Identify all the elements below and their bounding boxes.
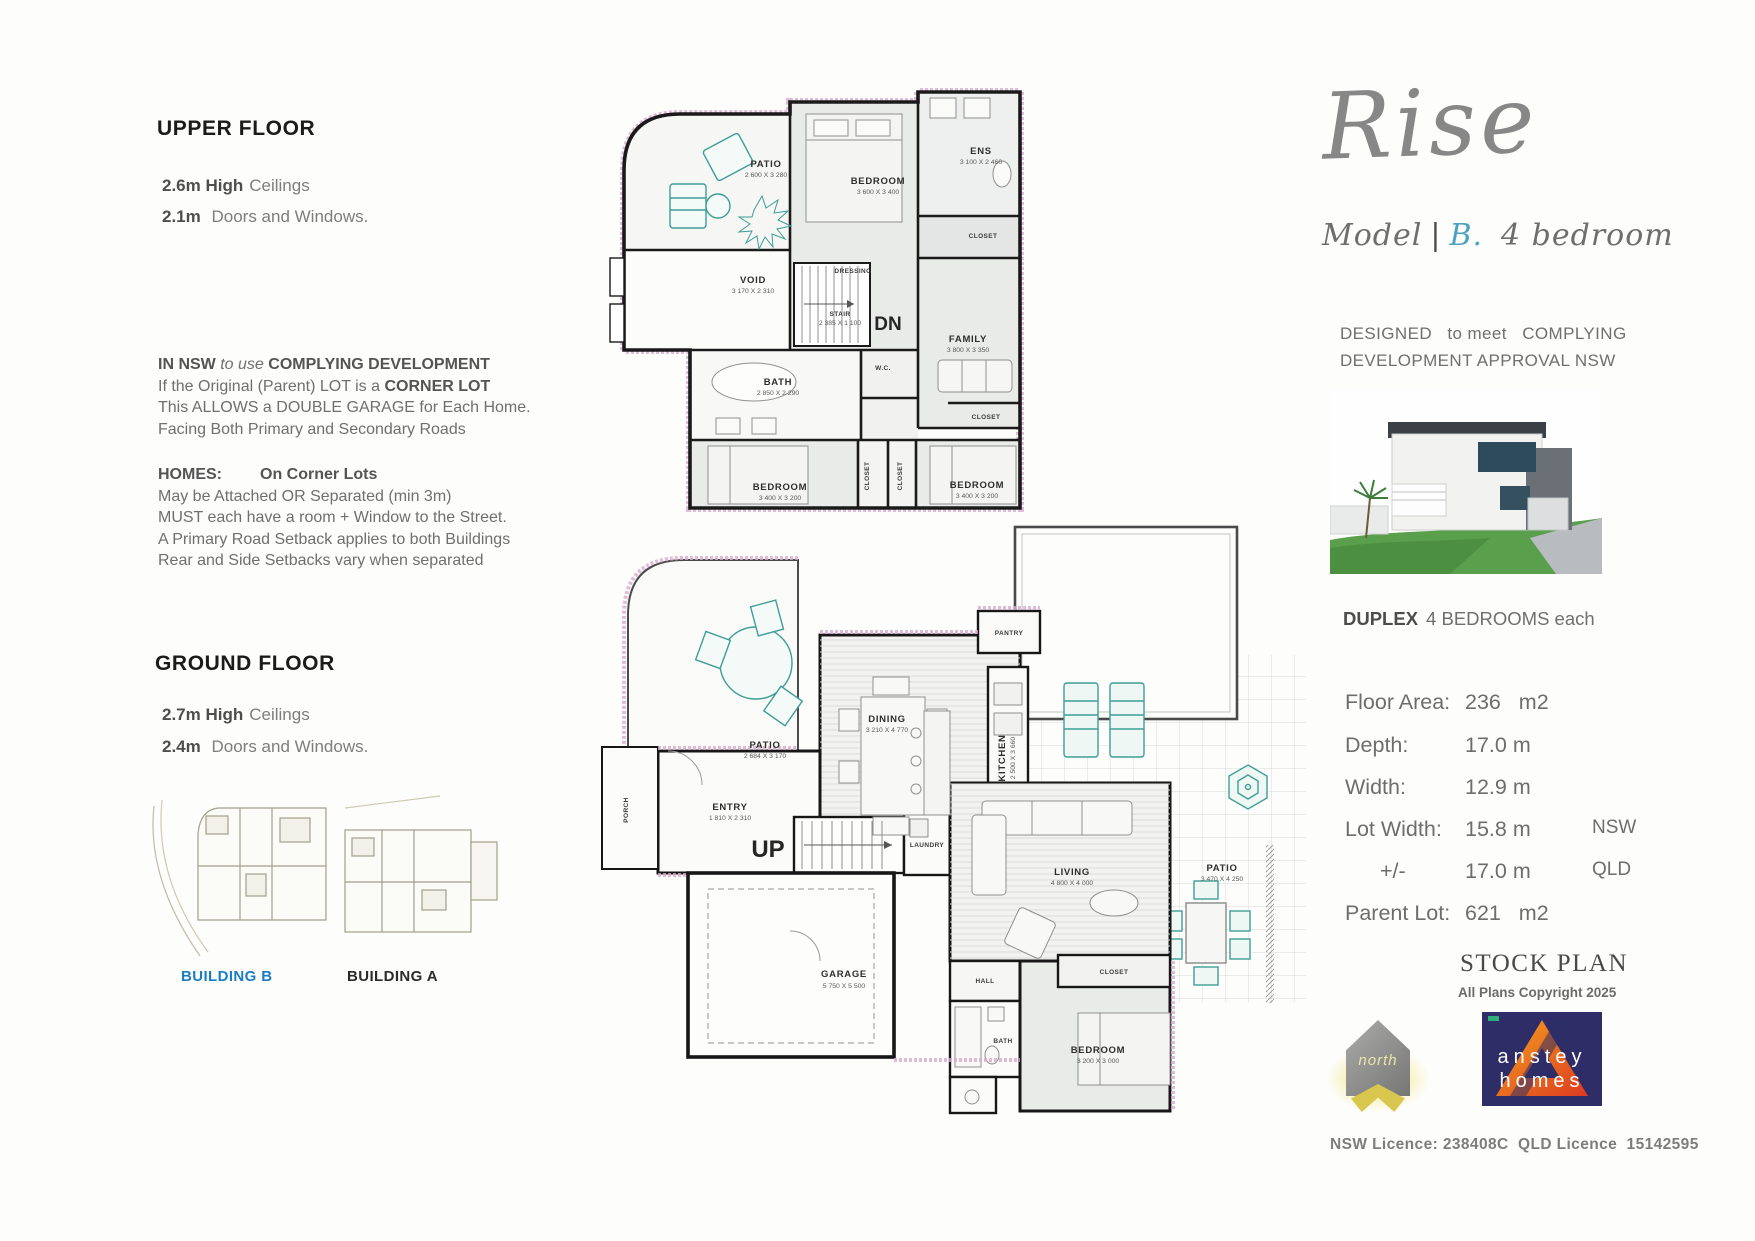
nsw-bold1: IN NSW [158, 356, 216, 373]
upper-ceiling-spec: 2.6m HighCeilings [162, 176, 310, 196]
ground-pantry-label: PANTRY [995, 630, 1024, 637]
ground-closet-label: CLOSET [1100, 969, 1129, 976]
homes-note: HOMES:On Corner Lots May be Attached OR … [158, 464, 618, 572]
anstey-word: anstey [1482, 1046, 1602, 1069]
ground-hall-label: HALL [976, 978, 995, 985]
spec-lot-width-region: NSW [1592, 817, 1636, 839]
building-b-label: BUILDING B [181, 968, 273, 985]
render-fence [1330, 506, 1388, 534]
upper-closet-master-label: CLOSET [969, 233, 998, 240]
spec-lot-width-value: 15.8 m [1465, 817, 1531, 842]
nsw-note-line2: If the Original (Parent) LOT is a CORNER… [158, 376, 598, 398]
spec-width-value: 12.9 m [1465, 775, 1531, 800]
ground-door-height: 2.4m [162, 737, 201, 756]
upper-family-label: FAMILY [949, 334, 987, 345]
upper-master-label: BEDROOM [851, 176, 906, 187]
ground-front-patio [624, 558, 802, 765]
upper-ens-dims: 3 100 X 2 460 [960, 159, 1003, 166]
site-plan-buildings [153, 796, 497, 956]
nsw-italic: to use [216, 356, 268, 373]
homes-bold1: HOMES: [158, 466, 222, 483]
ground-laundry-label: LAUNDRY [910, 842, 945, 849]
spec-plusminus-label: +/- [1380, 859, 1406, 884]
ground-garage-dims: 5 750 X 5 500 [823, 983, 866, 990]
designed-line1: DESIGNED to meet COMPLYING [1340, 320, 1620, 347]
spec-floor-area-value: 236 m2 [1465, 690, 1549, 715]
ground-bedroom-label: BEDROOM [1071, 1045, 1126, 1056]
upper-patio-label: PATIO [750, 159, 781, 170]
designed-line2: DEVELOPMENT APPROVAL NSW [1340, 347, 1620, 374]
nsw-note-line1: IN NSW to use COMPLYING DEVELOPMENT [158, 354, 598, 376]
ground-bedroom-dims: 3 200 X 3 000 [1077, 1058, 1120, 1065]
spec-parent-lot-value: 621 m2 [1465, 901, 1549, 926]
upper-closet-mid-b-label: CLOSET [897, 462, 904, 491]
upper-ceiling-height: 2.6m High [162, 176, 243, 195]
upper-stair-label: STAIR [829, 311, 850, 318]
homes-note-line5: Rear and Side Setbacks vary when separat… [158, 550, 618, 572]
upper-dressing-label: DRESSING [834, 268, 871, 275]
upper-bath-label: BATH [764, 377, 792, 388]
upper-void-label: VOID [740, 275, 766, 286]
nsw-note: IN NSW to use COMPLYING DEVELOPMENT If t… [158, 354, 598, 440]
upper-bedroom-left-dims: 3 400 X 3 200 [759, 495, 802, 502]
homes-note-line4: A Primary Road Setback applies to both B… [158, 529, 618, 551]
building-a-label: BUILDING A [347, 968, 438, 985]
upper-closet-mid-a-label: CLOSET [864, 462, 871, 491]
upper-bedroom-right-label: BEDROOM [950, 480, 1005, 491]
ground-patio-rear-label: PATIO [1206, 863, 1237, 874]
ground-living-label: LIVING [1054, 867, 1090, 878]
upper-stair-dn: DN [874, 314, 901, 335]
ground-kitchen-dims: 2 500 X 3 660 [1010, 737, 1017, 780]
upper-ens-label: ENS [970, 146, 992, 157]
brand-logo-rise: Rise [1320, 66, 1540, 180]
upper-door-rest: Doors and Windows. [207, 207, 369, 226]
nsw-note-line4: Facing Both Primary and Secondary Roads [158, 419, 598, 441]
duplex-bold: DUPLEX [1343, 608, 1418, 629]
spec-depth-value: 17.0 m [1465, 733, 1531, 758]
designed-note: DESIGNED to meet COMPLYING DEVELOPMENT A… [1340, 320, 1620, 374]
spec-plusminus-region: QLD [1592, 859, 1631, 881]
upper-bedroom-left-label: BEDROOM [753, 482, 808, 493]
homes-note-line3: MUST each have a room + Window to the St… [158, 507, 618, 529]
stock-plan-label: STOCK PLAN [1460, 950, 1628, 978]
nsw-note-line3: This ALLOWS a DOUBLE GARAGE for Each Hom… [158, 397, 598, 419]
upper-void-dims: 3 170 X 2 310 [732, 288, 775, 295]
upper-wc-label: W.C. [875, 365, 891, 372]
upper-bath-dims: 2 850 X 2 290 [757, 390, 800, 397]
nsw-line2b: CORNER LOT [384, 378, 490, 395]
ground-patio-rear-dims: 3 470 X 4 250 [1201, 876, 1244, 883]
upper-patio-dims: 2 600 X 3 280 [745, 172, 788, 179]
duplex-line: DUPLEX4 BEDROOMS each [1343, 608, 1595, 630]
upper-closet-hall-label: CLOSET [972, 414, 1001, 421]
ground-door-rest: Doors and Windows. [207, 737, 369, 756]
spec-parent-lot-label: Parent Lot: [1345, 901, 1450, 926]
upper-stair-dims: 2 385 X 1 100 [819, 320, 862, 327]
ground-living-dims: 4 800 X 4 000 [1051, 880, 1094, 887]
anstey-homes-logo: anstey homes [1482, 1012, 1602, 1106]
spec-lot-width-label: Lot Width: [1345, 817, 1442, 842]
ground-ceiling-rest: Ceilings [249, 705, 309, 724]
upper-floor-plan: PATIO 2 600 X 3 280 BEDROOM 3 600 X 3 40… [558, 88, 1033, 513]
ground-patio-front-dims: 2 684 X 3 170 [744, 753, 787, 760]
upper-ceiling-rest: Ceilings [249, 176, 309, 195]
nsw-line2a: If the Original (Parent) LOT is a [158, 378, 384, 395]
model-prefix: Model [1322, 218, 1422, 253]
upper-door-spec: 2.1m Doors and Windows. [162, 207, 368, 227]
spec-floor-area-label: Floor Area: [1345, 690, 1450, 715]
licence-line: NSW Licence: 238408C QLD Licence 1514259… [1330, 1136, 1699, 1154]
ground-entry-dims: 1 810 X 2 310 [709, 815, 752, 822]
ground-dining-label: DINING [868, 714, 905, 725]
ground-porch-label: PORCH [623, 797, 630, 822]
copyright-label: All Plans Copyright 2025 [1458, 985, 1616, 1000]
house-render-image [1330, 388, 1602, 574]
upper-door-height: 2.1m [162, 207, 201, 226]
ground-garage-label: GARAGE [821, 969, 867, 980]
ground-door-spec: 2.4m Doors and Windows. [162, 737, 368, 757]
nsw-bold2: COMPLYING DEVELOPMENT [268, 356, 490, 373]
homes-bold2: On Corner Lots [260, 466, 377, 483]
ground-bath-label: BATH [993, 1038, 1012, 1045]
ground-ceiling-spec: 2.7m HighCeilings [162, 705, 310, 725]
north-compass-logo: north [1320, 1020, 1436, 1116]
anstey-green-mark [1488, 1016, 1499, 1021]
model-variant: B. [1449, 218, 1483, 253]
upper-floor-heading: UPPER FLOOR [157, 117, 315, 141]
site-plan-sketch [140, 778, 530, 964]
model-bar: | [1430, 218, 1441, 253]
duplex-rest: 4 BEDROOMS each [1426, 608, 1595, 629]
ground-floor-heading: GROUND FLOOR [155, 652, 335, 676]
upper-family-dims: 3 800 X 3 350 [947, 347, 990, 354]
spec-width-label: Width: [1345, 775, 1406, 800]
homes-word: homes [1482, 1070, 1602, 1093]
ground-ceiling-height: 2.7m High [162, 705, 243, 724]
ground-dining-dims: 3 210 X 4 770 [866, 727, 909, 734]
ground-floor-plan: PATIO 2 684 X 3 170 DINING 3 210 X 4 770… [558, 515, 1313, 1115]
spec-plusminus-value: 17.0 m [1465, 859, 1531, 884]
stock-plan-sheet: UPPER FLOOR 2.6m HighCeilings 2.1m Doors… [0, 0, 1755, 1241]
ground-kitchen-label: KITCHEN [997, 734, 1008, 781]
ground-patio-front-label: PATIO [749, 740, 780, 751]
model-line: Model|B.4 bedroom [1322, 218, 1674, 253]
model-suffix: 4 bedroom [1501, 218, 1674, 253]
ground-stair-up: UP [751, 836, 784, 863]
upper-master-dims: 3 600 X 3 400 [857, 189, 900, 196]
homes-note-line2: May be Attached OR Separated (min 3m) [158, 486, 618, 508]
ground-entry-label: ENTRY [712, 802, 747, 813]
upper-bedroom-right-dims: 3 400 X 3 200 [956, 493, 999, 500]
homes-note-line1: HOMES:On Corner Lots [158, 464, 618, 486]
north-label: north [1346, 1052, 1410, 1069]
spec-depth-label: Depth: [1345, 733, 1408, 758]
